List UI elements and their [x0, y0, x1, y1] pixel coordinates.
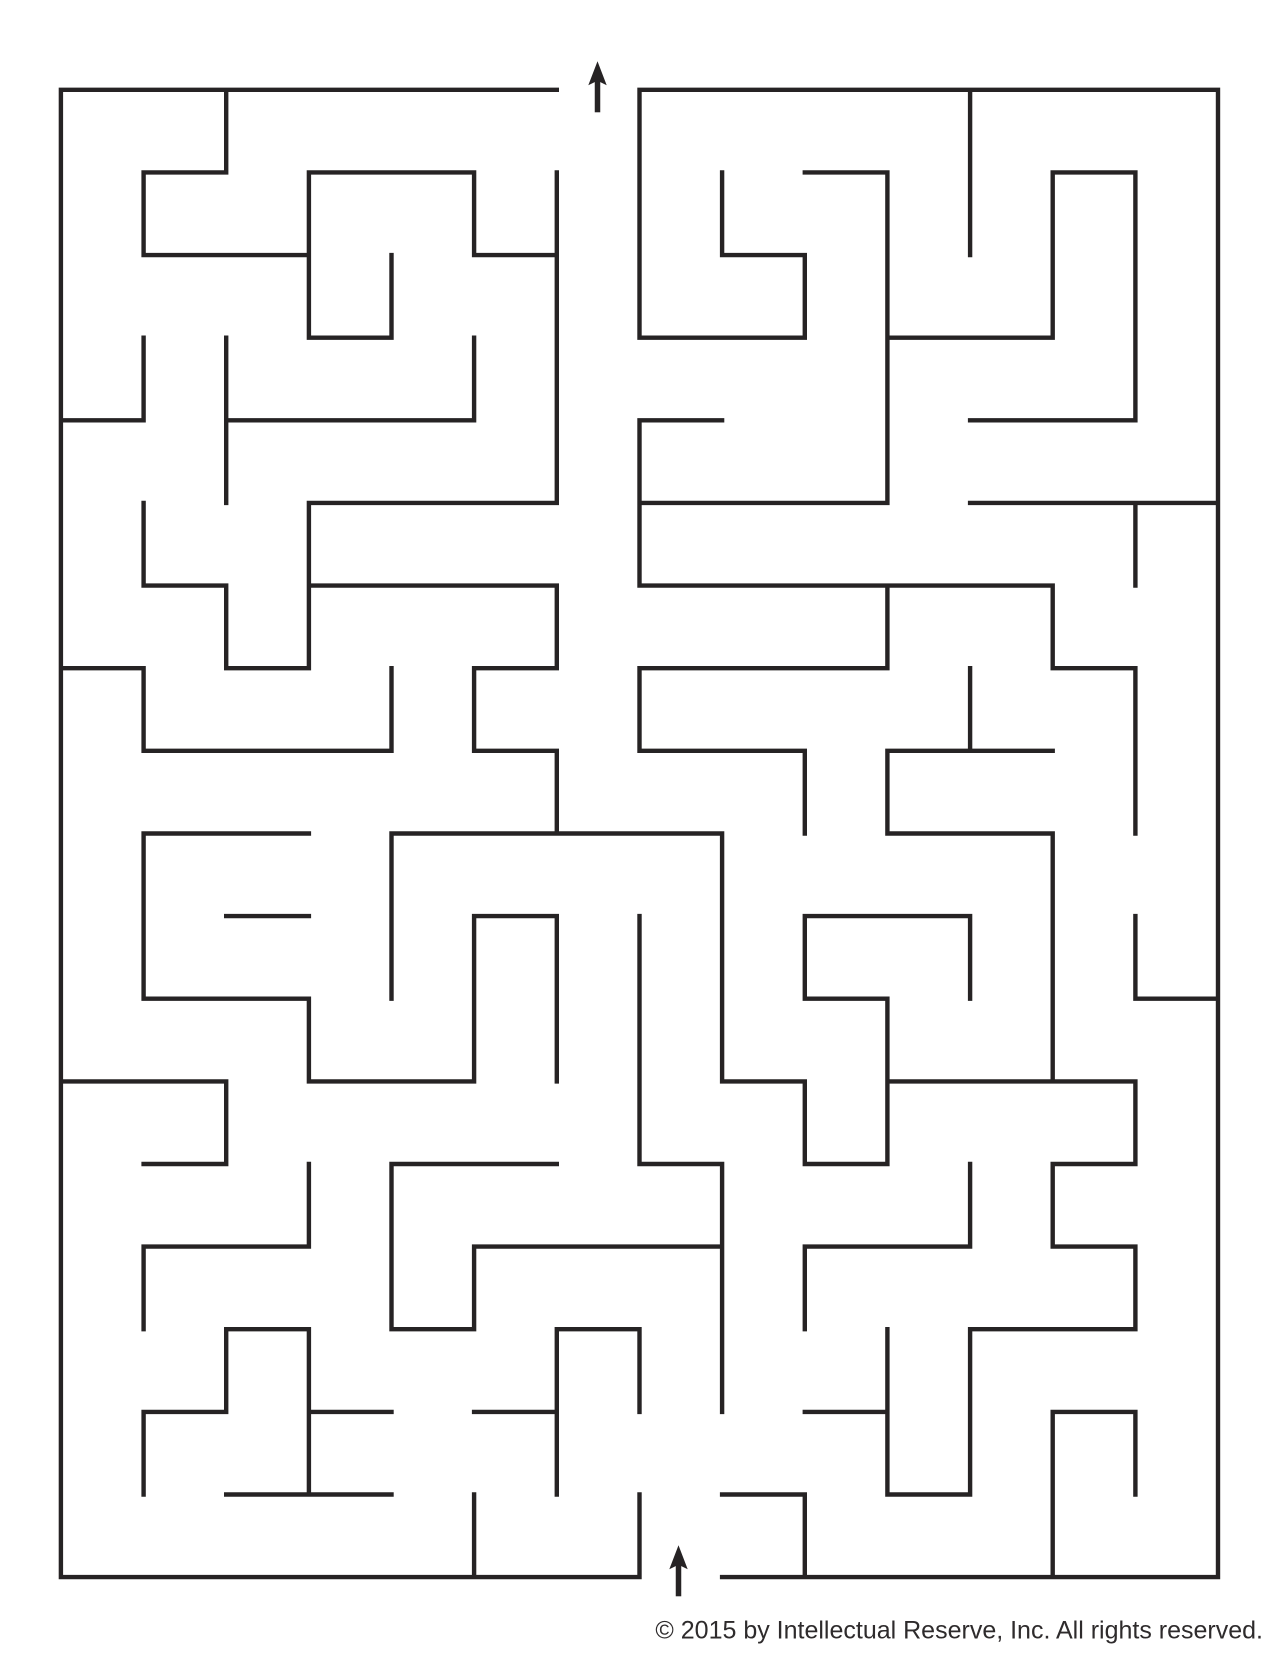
svg-text:© 2015 by Intellectual Reserve: © 2015 by Intellectual Reserve, Inc. All… [655, 1617, 1263, 1645]
